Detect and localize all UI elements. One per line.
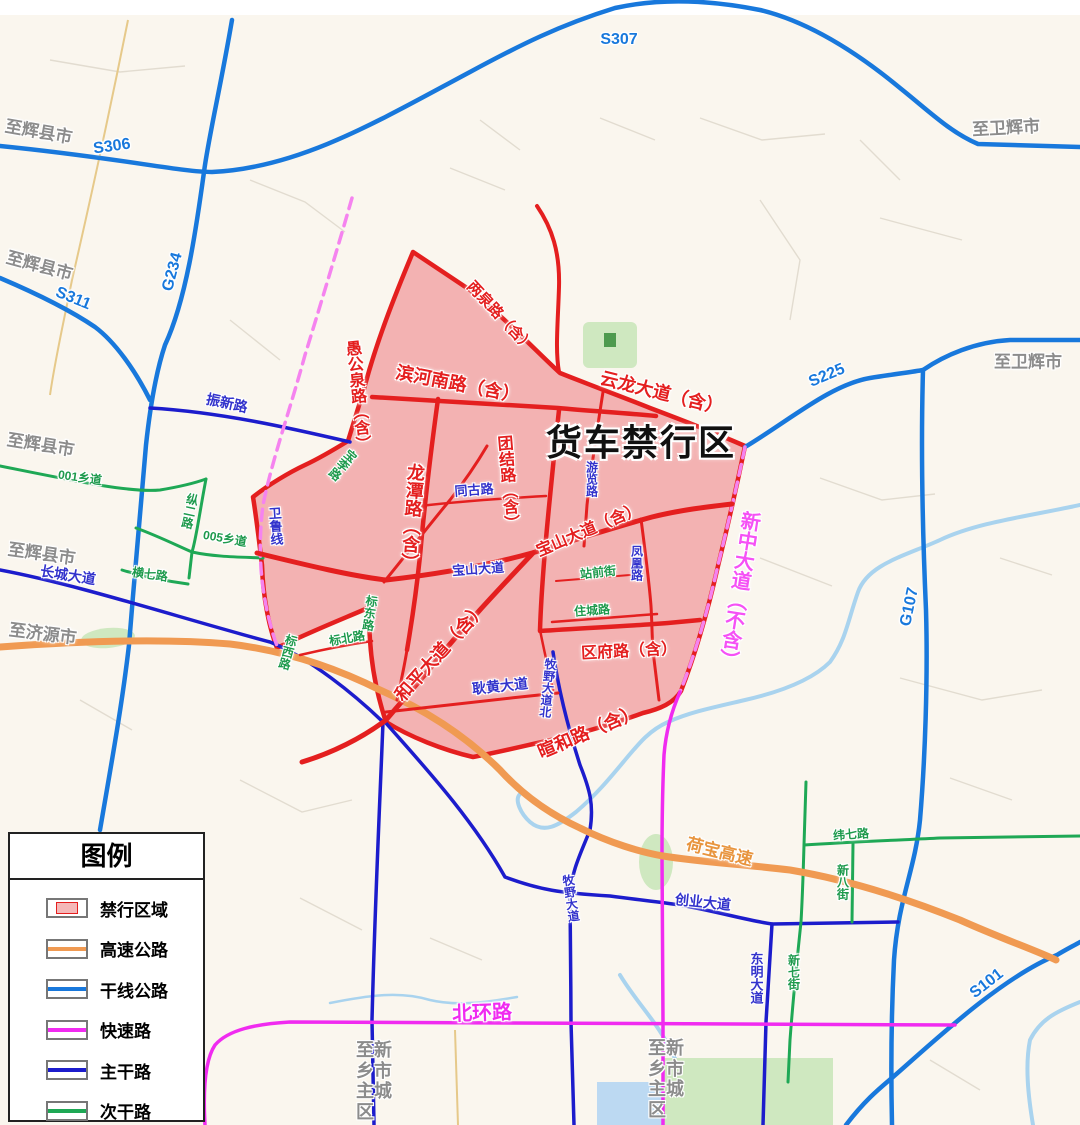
- legend-item-label: 次干路: [100, 1098, 151, 1123]
- map-margin: [0, 0, 1080, 15]
- legend-item-label: 干线公路: [100, 977, 168, 1002]
- legend-item-expressway: 高速公路: [10, 929, 203, 970]
- legend-title: 图例: [10, 834, 203, 880]
- label-zhucheng: 住城路: [573, 600, 610, 619]
- legend-zone-swatch: [46, 898, 88, 918]
- legend-item-label: 快速路: [100, 1017, 151, 1042]
- label-to-xinxiang-2: 至新乡市主城区: [648, 1038, 690, 1121]
- legend-expressway-swatch: [46, 939, 88, 959]
- label-youlan: 游览路: [584, 461, 601, 497]
- legend-trunk-swatch: [46, 979, 88, 999]
- label-xinqi: 新七街: [786, 954, 803, 990]
- label-dongming: 东明大道: [747, 952, 766, 1004]
- park-building-icon: [604, 333, 616, 347]
- legend-item-label: 主干路: [100, 1058, 151, 1083]
- label-wei7: 纬七路: [832, 824, 869, 843]
- truck-ban-map: S306 S307 S311 G234 S225 G107 S101 至辉县市 …: [0, 0, 1080, 1125]
- legend-major-swatch: [46, 1060, 88, 1080]
- legend-item-fastroad: 快速路: [10, 1010, 203, 1051]
- legend-item-zone: 禁行区域: [10, 888, 203, 929]
- label-baoshan: 宝山大道: [451, 557, 504, 580]
- legend: 图例 禁行区域 高速公路 干线公路 快速路 主干路 次干路: [8, 832, 205, 1122]
- legend-item-label: 高速公路: [100, 936, 168, 961]
- zone-title: 货车禁行区: [546, 414, 736, 466]
- legend-secondary-swatch: [46, 1101, 88, 1121]
- interchange-green: [639, 834, 673, 890]
- label-to-xinxiang-1: 至新乡市主城区: [356, 1040, 398, 1123]
- label-tonggu: 同古路: [454, 478, 494, 500]
- label-s307: S307: [600, 31, 637, 49]
- label-fenghuang: 凤凰路: [629, 545, 646, 581]
- label-weilu: 卫鲁线: [264, 506, 286, 546]
- label-qufu: 区府路（含）: [580, 635, 677, 664]
- legend-item-trunk: 干线公路: [10, 969, 203, 1010]
- legend-item-secondary: 次干路: [10, 1091, 203, 1125]
- legend-item-label: 禁行区域: [100, 896, 168, 921]
- legend-item-major: 主干路: [10, 1050, 203, 1091]
- label-xinba: 新八街: [835, 864, 852, 900]
- label-to-weihui-2: 至卫辉市: [994, 348, 1062, 373]
- legend-fastroad-swatch: [46, 1020, 88, 1040]
- label-beihuan: 北环路: [452, 995, 513, 1026]
- label-to-weihui-1: 至卫辉市: [971, 112, 1040, 141]
